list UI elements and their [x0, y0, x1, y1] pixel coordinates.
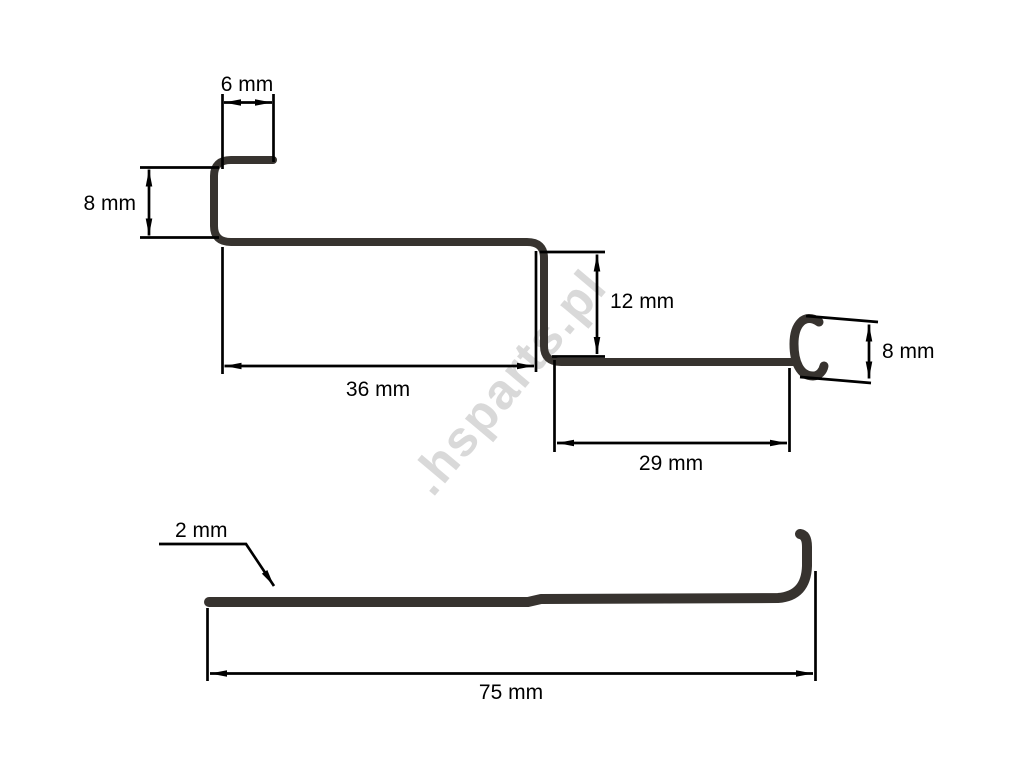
dim-6mm: 6 mm: [221, 73, 274, 169]
dim-label-36mm: 36 mm: [346, 378, 410, 401]
dim-2mm: 2 mm: [159, 519, 274, 586]
top-view-figure: 6 mm 8 mm 36 mm 12 mm: [84, 73, 935, 475]
dim-label-12mm: 12 mm: [610, 290, 674, 313]
dim-label-29mm: 29 mm: [639, 452, 703, 475]
bottom-view-figure: 2 mm 75 mm: [159, 519, 816, 704]
dim-label-75mm: 75 mm: [479, 681, 543, 704]
dim-75mm: 75 mm: [208, 571, 816, 704]
top-wire-end-loop: [794, 319, 824, 376]
top-wire: [214, 160, 794, 362]
dim-label-8mm-right: 8 mm: [882, 340, 935, 363]
bottom-wire: [209, 534, 807, 602]
dim-29mm: 29 mm: [555, 360, 790, 475]
dim-8mm-left: 8 mm: [84, 168, 220, 238]
dim-12mm: 12 mm: [540, 252, 674, 357]
leader-arrow-line: [159, 544, 274, 586]
dim-label-6mm: 6 mm: [221, 73, 274, 96]
dim-label-2mm: 2 mm: [175, 519, 228, 542]
dim-label-8mm-left: 8 mm: [84, 192, 137, 215]
wire-dimension-drawing: 6 mm 8 mm 36 mm 12 mm: [0, 0, 1024, 768]
technical-drawing-page: .hsparts.pl 6 mm 8 mm: [0, 0, 1024, 768]
dim-36mm: 36 mm: [223, 247, 537, 401]
